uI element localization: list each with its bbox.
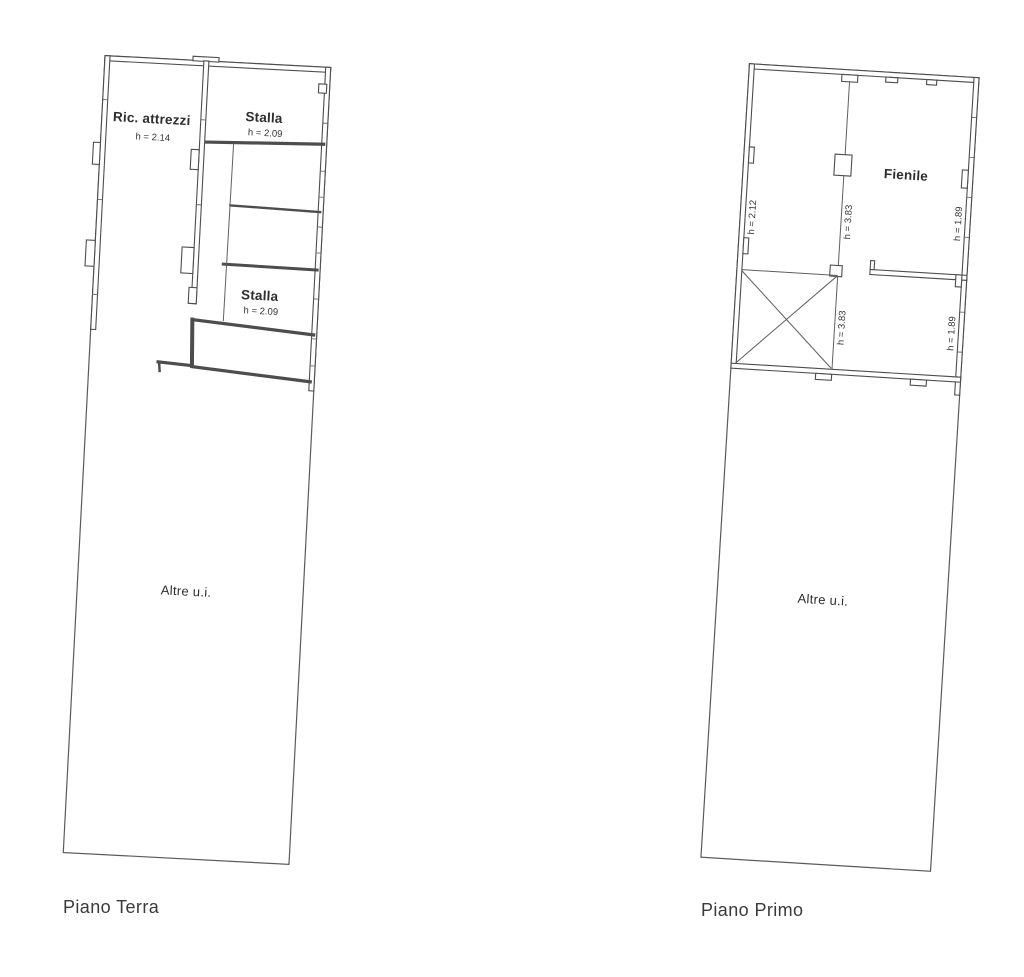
room-label-stalla-2: Stalla	[241, 287, 279, 304]
area-label-altre-ui-terra: Altre u.i.	[160, 582, 211, 600]
height-label-h189-upper: h = 1.89	[952, 206, 965, 241]
pillar-marker	[834, 154, 852, 176]
piano-primo-labels: Fienile h = 2.12 h = 3.83 h = 1.89 h = 3…	[724, 158, 968, 614]
height-label-h212: h = 2.12	[746, 200, 759, 235]
floor-title-piano-primo: Piano Primo	[701, 900, 803, 920]
piano-terra-labels: Ric. attrezzi h = 2.14 Stalla h = 2.09 S…	[88, 102, 289, 602]
room-label-ric-attrezzi: Ric. attrezzi	[113, 109, 191, 128]
stairwell-x-marker	[736, 270, 837, 369]
area-label-altre-ui-primo: Altre u.i.	[797, 591, 849, 609]
piano-terra-walls	[54, 51, 331, 864]
room-label-fienile: Fienile	[883, 166, 928, 184]
height-label-h383-lower: h = 3.83	[835, 310, 848, 345]
height-label-stalla-2: h = 2.09	[243, 305, 278, 318]
scanned-floorplan-page: Ric. attrezzi h = 2.14 Stalla h = 2.09 S…	[0, 0, 1024, 977]
floor-title-piano-terra: Piano Terra	[63, 897, 160, 917]
piano-primo-plan: Fienile h = 2.12 h = 3.83 h = 1.89 h = 3…	[701, 64, 979, 872]
height-label-h383-upper: h = 3.83	[842, 204, 855, 239]
floor-plan-document: Ric. attrezzi h = 2.14 Stalla h = 2.09 S…	[0, 0, 1024, 977]
room-label-stalla-1: Stalla	[245, 109, 283, 126]
piano-primo-walls	[701, 64, 979, 872]
height-label-ric-attrezzi: h = 2.14	[135, 131, 170, 144]
piano-terra-plan: Ric. attrezzi h = 2.14 Stalla h = 2.09 S…	[54, 51, 331, 864]
height-label-stalla-1: h = 2.09	[248, 127, 283, 140]
height-label-h189-lower: h = 1.89	[945, 316, 958, 351]
